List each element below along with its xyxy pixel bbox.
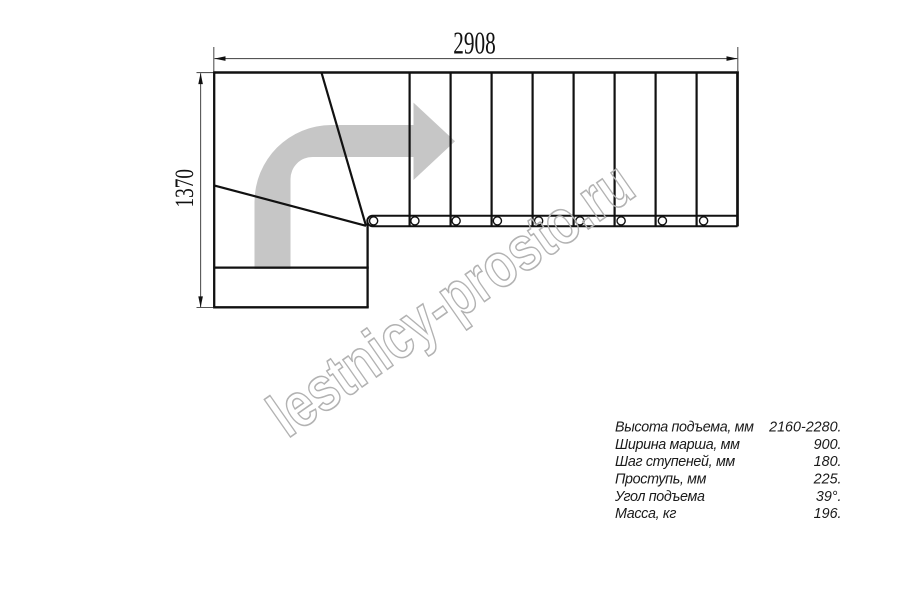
svg-text:196.: 196. [814,506,842,522]
svg-text:1370: 1370 [169,169,199,208]
svg-text:2160-2280.: 2160-2280. [768,419,841,435]
svg-text:39°.: 39°. [816,489,842,505]
svg-text:Угол подъема: Угол подъема [614,489,705,505]
svg-text:Шаг ступеней, мм: Шаг ступеней, мм [615,454,735,470]
svg-text:Проступь, мм: Проступь, мм [615,472,707,488]
svg-text:2908: 2908 [453,26,496,61]
svg-text:Ширина марша, мм: Ширина марша, мм [615,437,740,453]
svg-text:225.: 225. [813,472,842,488]
svg-text:900.: 900. [814,437,842,453]
svg-text:180.: 180. [814,454,842,470]
svg-text:Масса, кг: Масса, кг [615,506,676,522]
svg-text:Высота подъема, мм: Высота подъема, мм [615,419,754,435]
